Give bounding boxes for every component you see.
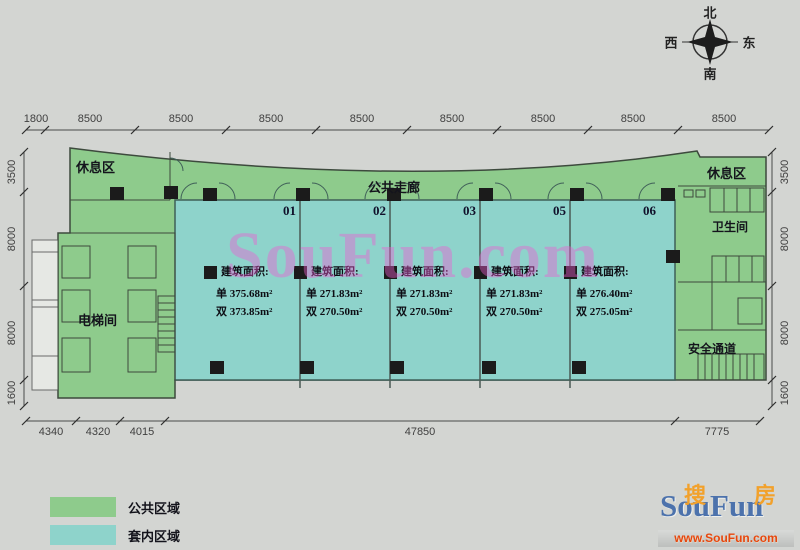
unit-01-info: 建筑面积: 单 375.68m² 双 373.85m² — [204, 265, 288, 319]
soufun-logo: SouFun 搜 房 www.SouFun.com — [658, 480, 798, 548]
dim-left-2: 8000 — [6, 321, 18, 345]
soufun-logo-fang: 房 — [754, 478, 776, 510]
column-icon — [204, 266, 217, 279]
dim-bottom-1: 4320 — [86, 426, 110, 438]
soufun-logo-brand: SouFun — [660, 488, 763, 524]
dim-top-3: 8500 — [259, 113, 283, 125]
compass-south-label: 南 — [703, 64, 716, 83]
soufun-logo-url: www.SouFun.com — [658, 530, 794, 547]
compass-rose-icon — [682, 19, 738, 65]
dim-right-3: 1600 — [779, 381, 791, 405]
dim-top-2: 8500 — [169, 113, 193, 125]
compass-east-label: 东 — [742, 33, 755, 52]
dim-top-8: 8500 — [712, 113, 736, 125]
unit-01-double-area: 双 373.85m² — [216, 305, 288, 319]
dim-top-0: 1800 — [24, 113, 48, 125]
dim-top-4: 8500 — [350, 113, 374, 125]
unit-number-05: 05 — [532, 203, 566, 219]
compass-west-label: 西 — [664, 33, 677, 52]
dim-bottom-2: 4015 — [130, 426, 154, 438]
dim-bottom-0: 4340 — [39, 426, 63, 438]
unit-02-info: 建筑面积: 单 271.83m² 双 270.50m² — [294, 265, 378, 319]
unit-number-01: 01 — [262, 203, 296, 219]
unit-03-double-area: 双 270.50m² — [396, 305, 468, 319]
unit-02-single-area: 单 271.83m² — [306, 287, 378, 301]
dim-left-1: 8000 — [6, 227, 18, 251]
rest-area-left-label: 休息区 — [76, 157, 115, 176]
unit-05-single-area: 单 271.83m² — [486, 287, 558, 301]
dim-left-0: 3500 — [6, 160, 18, 184]
dim-top-1: 8500 — [78, 113, 102, 125]
dim-top-6: 8500 — [531, 113, 555, 125]
unit-05-info: 建筑面积: 单 271.83m² 双 270.50m² — [474, 265, 558, 319]
unit-03-single-area: 单 271.83m² — [396, 287, 468, 301]
legend-interior-swatch — [50, 525, 116, 545]
unit-05-double-area: 双 270.50m² — [486, 305, 558, 319]
rest-area-right-label: 休息区 — [707, 163, 746, 182]
dim-top-7: 8500 — [621, 113, 645, 125]
unit-01-area-title: 建筑面积: — [221, 265, 269, 279]
dim-top-5: 8500 — [440, 113, 464, 125]
dim-left-3: 1600 — [6, 381, 18, 405]
unit-05-area-title: 建筑面积: — [491, 265, 539, 279]
column-icon — [384, 266, 397, 279]
legend-interior-row: 套内区域 — [50, 525, 180, 545]
unit-03-info: 建筑面积: 单 271.83m² 双 270.50m² — [384, 265, 468, 319]
elevator-hall-label: 电梯间 — [78, 310, 117, 329]
soufun-logo-sou: 搜 — [684, 478, 706, 510]
dim-bottom-3: 47850 — [405, 426, 436, 438]
unit-06-double-area: 双 275.05m² — [576, 305, 648, 319]
dim-right-1: 8000 — [779, 227, 791, 251]
legend-public-label: 公共区域 — [128, 498, 180, 517]
unit-02-double-area: 双 270.50m² — [306, 305, 378, 319]
unit-number-03: 03 — [442, 203, 476, 219]
unit-06-area-title: 建筑面积: — [581, 265, 629, 279]
unit-number-02: 02 — [352, 203, 386, 219]
unit-06-single-area: 单 276.40m² — [576, 287, 648, 301]
unit-number-06: 06 — [622, 203, 656, 219]
safety-exit-label: 安全通道 — [688, 340, 736, 357]
dim-right-0: 3500 — [779, 160, 791, 184]
dim-bottom-4: 7775 — [705, 426, 729, 438]
floorplan-page: 北 南 西 东 1800 8500 8500 8500 8500 8500 85… — [0, 0, 800, 550]
column-icon — [564, 266, 577, 279]
restroom-label: 卫生间 — [712, 218, 748, 235]
compass-north-label: 北 — [703, 3, 716, 22]
unit-01-single-area: 单 375.68m² — [216, 287, 288, 301]
dim-right-2: 8000 — [779, 321, 791, 345]
column-icon — [294, 266, 307, 279]
corridor-label: 公共走廊 — [368, 177, 420, 196]
left-protrusion — [32, 240, 58, 390]
unit-06-info: 建筑面积: 单 276.40m² 双 275.05m² — [564, 265, 648, 319]
unit-03-area-title: 建筑面积: — [401, 265, 449, 279]
column-icon — [474, 266, 487, 279]
legend-public-swatch — [50, 497, 116, 517]
legend-public-row: 公共区域 — [50, 497, 180, 517]
unit-02-area-title: 建筑面积: — [311, 265, 359, 279]
legend-interior-label: 套内区域 — [128, 526, 180, 545]
